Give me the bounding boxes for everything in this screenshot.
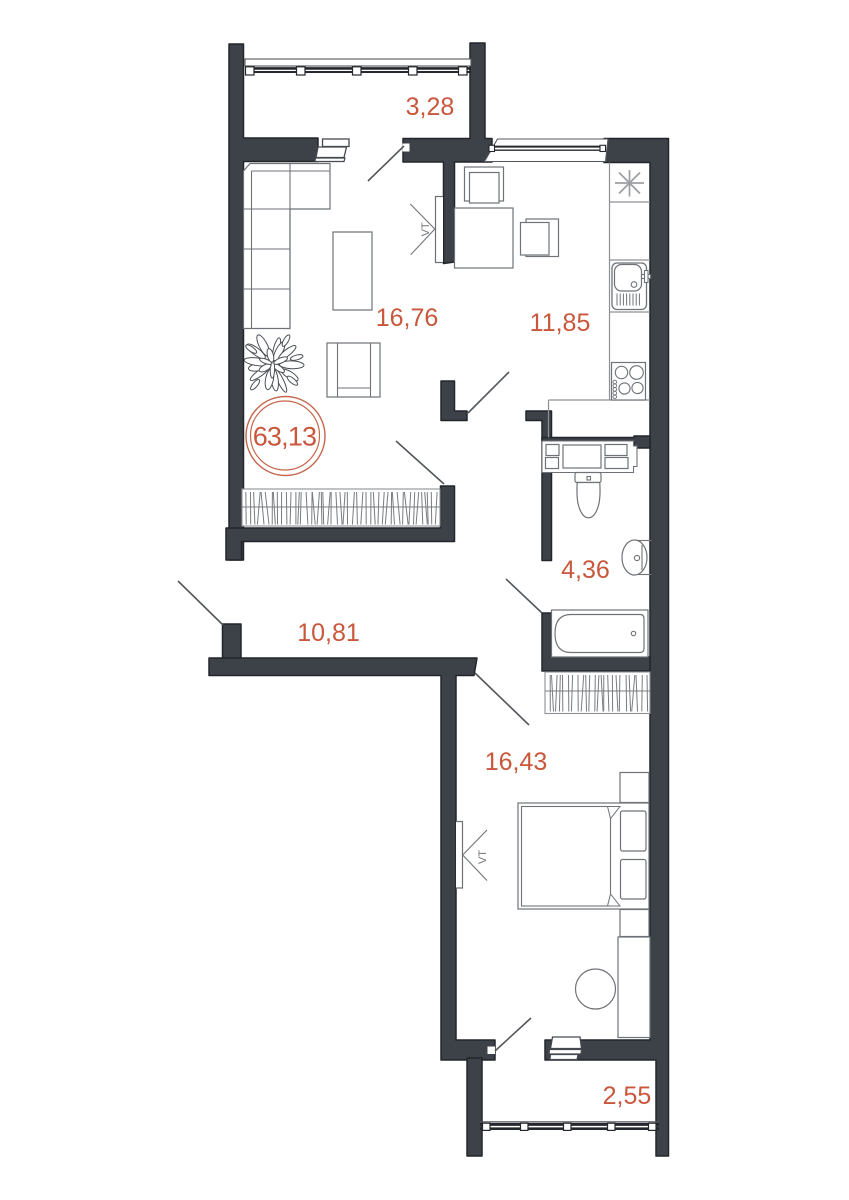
svg-text:3,28: 3,28 xyxy=(406,93,455,121)
svg-text:16,43: 16,43 xyxy=(485,748,548,776)
svg-text:VT: VT xyxy=(477,850,489,864)
svg-text:10,81: 10,81 xyxy=(297,619,360,647)
svg-text:2,55: 2,55 xyxy=(603,1082,652,1110)
svg-text:63,13: 63,13 xyxy=(253,422,317,452)
svg-text:VT: VT xyxy=(420,222,432,236)
svg-text:16,76: 16,76 xyxy=(376,304,439,332)
svg-text:11,85: 11,85 xyxy=(530,309,591,337)
svg-text:4,36: 4,36 xyxy=(561,556,610,584)
